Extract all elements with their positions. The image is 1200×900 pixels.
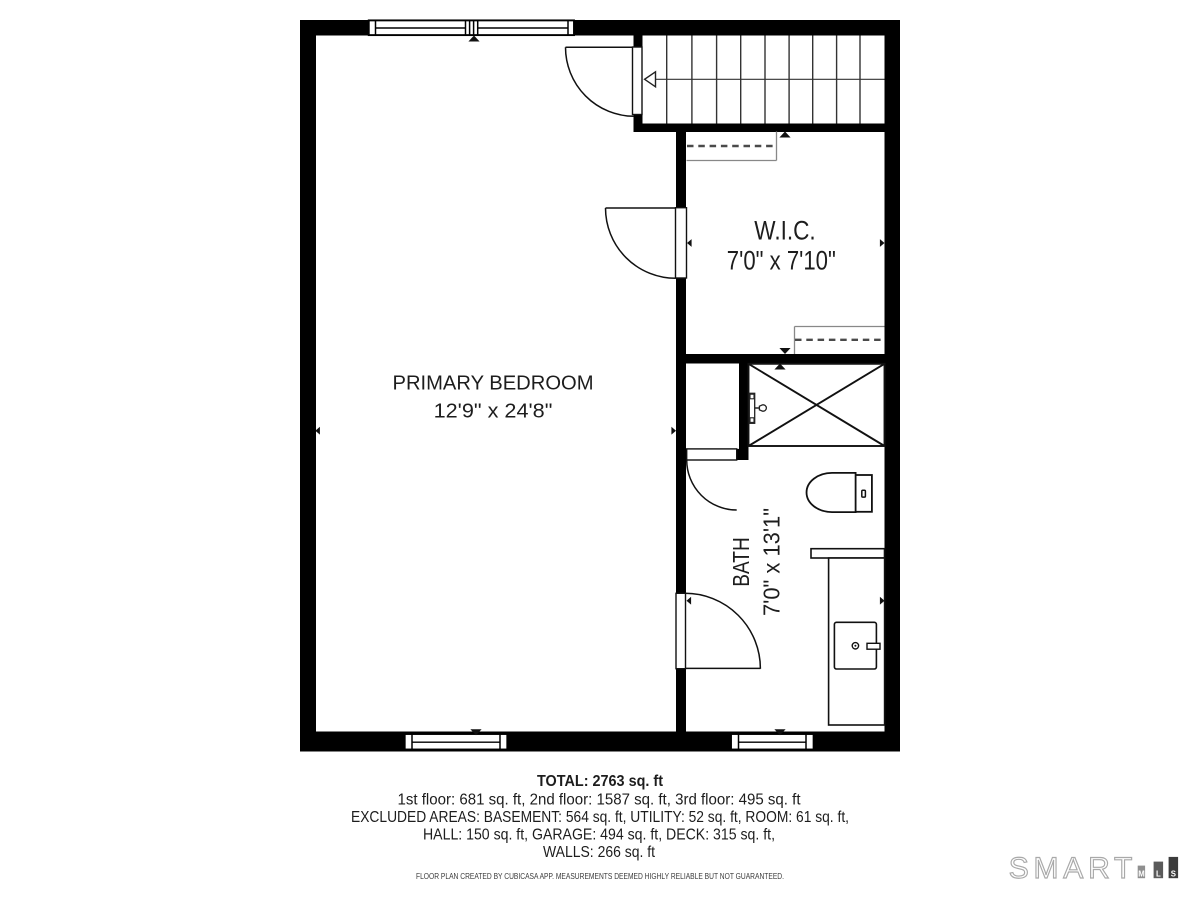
svg-text:7'0" x 13'1": 7'0" x 13'1" xyxy=(759,508,785,616)
svg-text:S: S xyxy=(1171,869,1176,878)
svg-text:7'0" x 7'10": 7'0" x 7'10" xyxy=(727,246,836,276)
svg-text:TOTAL: 2763 sq. ft: TOTAL: 2763 sq. ft xyxy=(537,773,663,790)
svg-text:BATH: BATH xyxy=(728,537,754,586)
svg-text:SMART: SMART xyxy=(1009,852,1137,885)
svg-text:L: L xyxy=(1156,869,1161,878)
svg-text:HALL: 150 sq. ft, GARAGE: 494: HALL: 150 sq. ft, GARAGE: 494 sq. ft, DE… xyxy=(423,827,775,844)
svg-text:12'9" x 24'8": 12'9" x 24'8" xyxy=(434,401,553,423)
svg-text:W.I.C.: W.I.C. xyxy=(754,215,815,245)
svg-text:FLOOR PLAN CREATED BY CUBICASA: FLOOR PLAN CREATED BY CUBICASA APP. MEAS… xyxy=(416,871,784,881)
svg-text:EXCLUDED AREAS: BASEMENT: 564: EXCLUDED AREAS: BASEMENT: 564 sq. ft, UT… xyxy=(351,809,849,826)
svg-text:1st floor: 681 sq. ft, 2nd flo: 1st floor: 681 sq. ft, 2nd floor: 1587 s… xyxy=(398,792,802,809)
svg-text:WALLS: 266 sq. ft: WALLS: 266 sq. ft xyxy=(543,844,656,861)
svg-text:M: M xyxy=(1138,869,1145,878)
svg-text:PRIMARY BEDROOM: PRIMARY BEDROOM xyxy=(393,373,594,395)
